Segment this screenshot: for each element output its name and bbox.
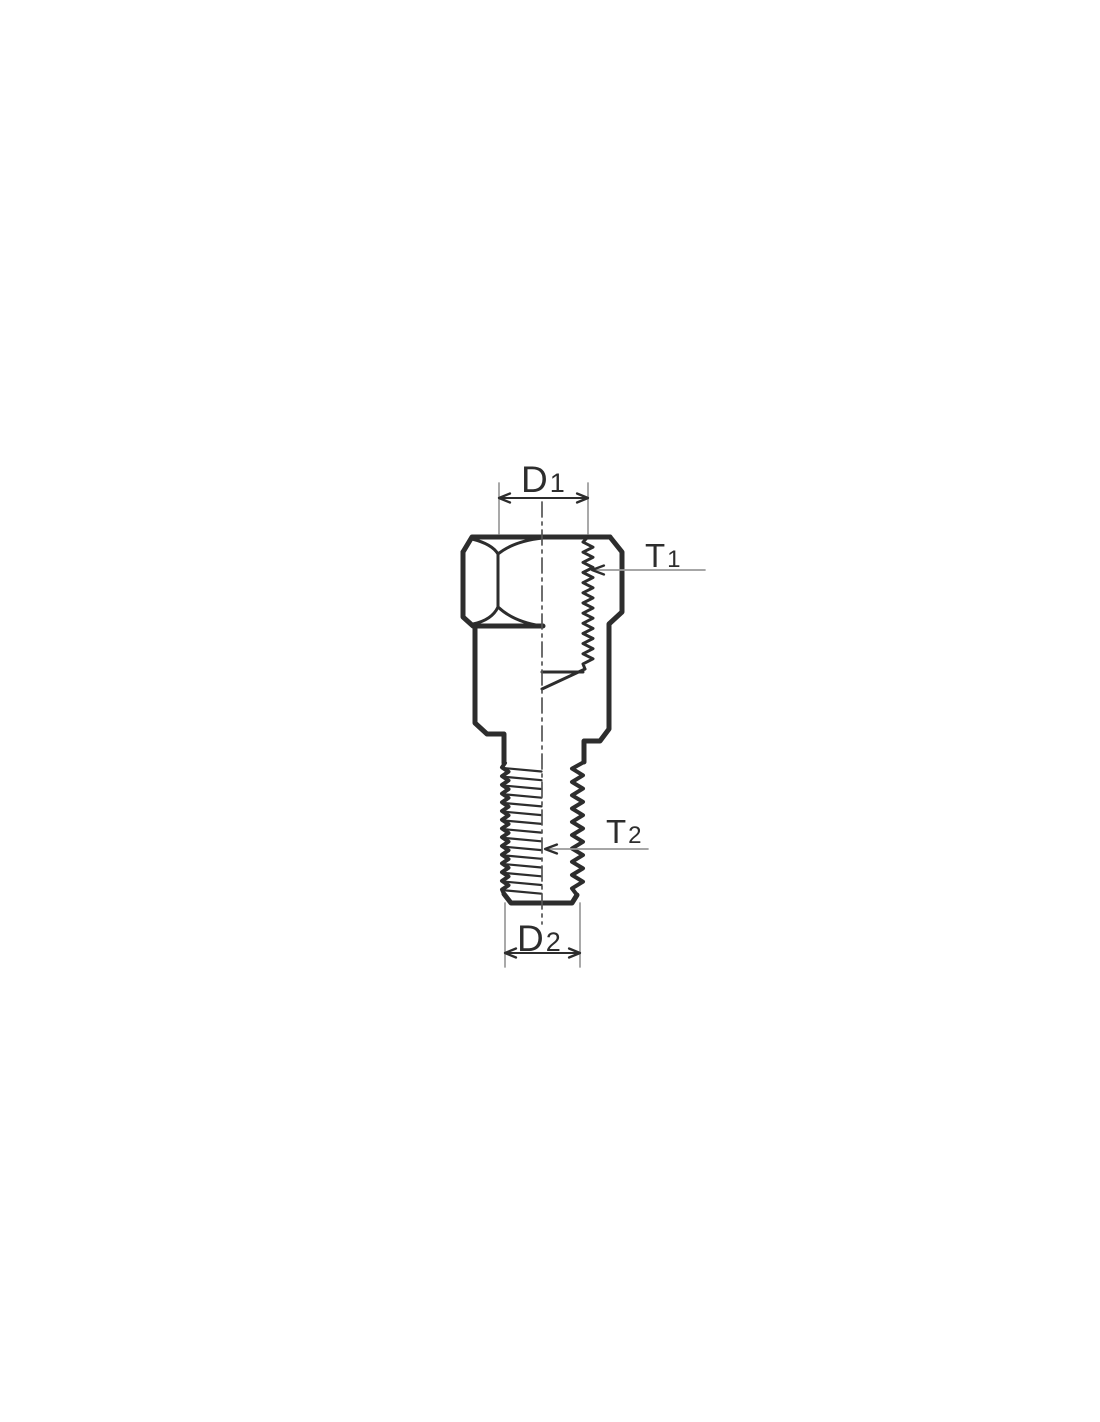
d2-label: D2 (517, 920, 561, 957)
t1-label-main: T (645, 537, 665, 574)
hex-facet-arc-bottom-left (473, 607, 498, 624)
t1-label: T1 (645, 539, 681, 572)
hex-facet-arc-top-right (498, 538, 543, 554)
t2-label: T2 (606, 815, 642, 848)
t1-label-sub: 1 (667, 546, 680, 573)
thread-crest-line (503, 890, 542, 894)
hex-facet-arc-bottom-right (498, 607, 542, 626)
t2-label-sub: 2 (628, 822, 641, 849)
hex-left-outline (463, 552, 543, 626)
drawing-canvas: D1 T1 T2 D2 (0, 0, 1100, 1422)
body-left-outline (475, 626, 504, 763)
adapter-technical-drawing (0, 0, 1100, 1422)
d2-label-sub: 2 (546, 927, 561, 957)
d1-label: D1 (521, 461, 565, 498)
t2-label-main: T (606, 813, 626, 850)
lower-thread-section-zigzag (572, 762, 584, 895)
d1-label-main: D (521, 459, 548, 500)
d1-label-sub: 1 (550, 468, 565, 498)
hex-facet-arc-top-left (472, 539, 498, 554)
d2-label-main: D (517, 918, 544, 959)
internal-thread-zigzag (583, 537, 593, 669)
stud-bottom-edge (504, 894, 577, 903)
